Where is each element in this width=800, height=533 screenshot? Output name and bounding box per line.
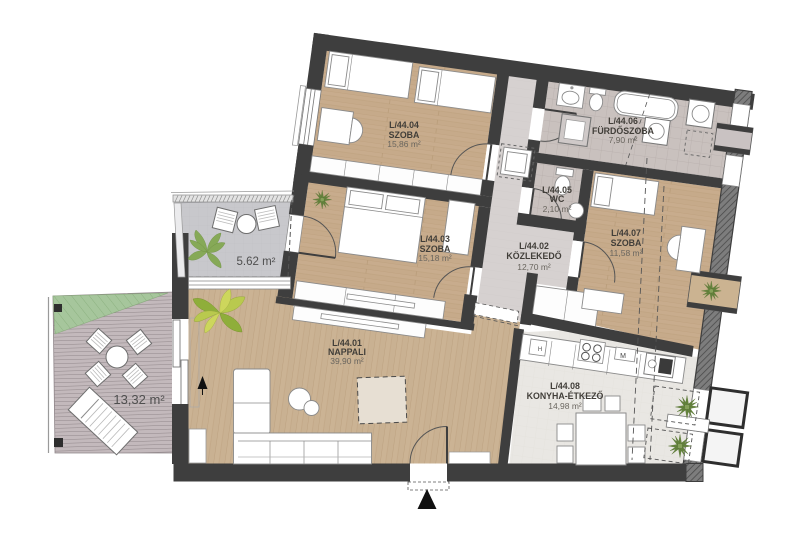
svg-text:13,32 m²: 13,32 m²	[113, 392, 165, 407]
svg-text:15,86 m²: 15,86 m²	[387, 139, 421, 149]
svg-text:WC: WC	[550, 194, 565, 204]
svg-text:L/44.04: L/44.04	[389, 120, 419, 130]
svg-text:L/44.03: L/44.03	[420, 234, 450, 244]
svg-text:L/44.06: L/44.06	[608, 116, 638, 126]
svg-text:7,90 m²: 7,90 m²	[609, 135, 638, 145]
svg-text:14,98 m²: 14,98 m²	[548, 401, 582, 411]
svg-text:12,70 m²: 12,70 m²	[517, 262, 551, 272]
svg-text:KONYHA-ÉTKEZŐ: KONYHA-ÉTKEZŐ	[527, 390, 604, 401]
svg-text:L/44.07: L/44.07	[611, 228, 641, 238]
svg-text:15,18 m²: 15,18 m²	[418, 253, 452, 263]
svg-text:11,58 m²: 11,58 m²	[610, 248, 643, 258]
svg-text:H: H	[538, 347, 542, 353]
svg-text:M: M	[620, 353, 626, 360]
svg-text:2,10 m²: 2,10 m²	[543, 204, 572, 214]
svg-text:L/44.02: L/44.02	[519, 241, 549, 251]
svg-text:L/44.08: L/44.08	[550, 381, 580, 391]
svg-text:SZOBA: SZOBA	[611, 238, 642, 248]
svg-text:KÖZLEKEDŐ: KÖZLEKEDŐ	[506, 250, 561, 261]
svg-text:5.62 m²: 5.62 m²	[237, 256, 276, 268]
svg-text:39,90 m²: 39,90 m²	[330, 356, 364, 366]
